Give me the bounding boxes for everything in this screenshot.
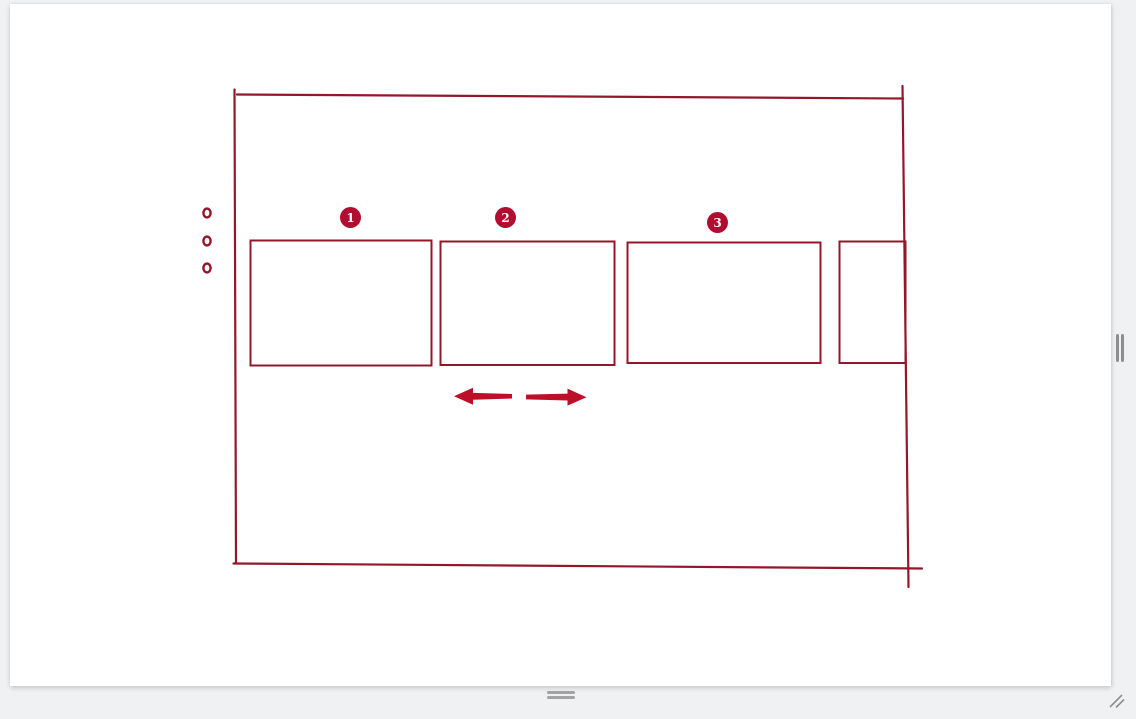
frame-bottom-line bbox=[234, 564, 923, 569]
bullet-dot-3 bbox=[203, 264, 210, 273]
frame-rectangle-3 bbox=[628, 243, 821, 364]
diagonal-resize-grip-icon bbox=[1108, 691, 1128, 711]
app-window: 1 2 3 bbox=[0, 0, 1136, 719]
frame-rectangle-1 bbox=[251, 241, 432, 366]
window-resize-grip[interactable] bbox=[1108, 691, 1128, 711]
bottom-panel-resize-handle[interactable] bbox=[546, 690, 576, 700]
bullet-dots bbox=[203, 209, 210, 273]
frame-rectangles bbox=[251, 241, 906, 366]
frame-rectangle-2 bbox=[441, 242, 615, 366]
frame-rectangle-4 bbox=[840, 242, 906, 364]
left-arrow-icon bbox=[454, 388, 512, 405]
horizontal-grip-icon bbox=[547, 691, 575, 694]
sketch-frame bbox=[234, 86, 923, 587]
bullet-dot-1 bbox=[203, 209, 210, 218]
vertical-grip-icon bbox=[1116, 334, 1119, 362]
sketch-layer bbox=[0, 0, 1136, 719]
frame-left-line bbox=[235, 90, 237, 564]
frame-top-line bbox=[237, 95, 903, 99]
horizontal-grip-icon bbox=[547, 696, 575, 699]
step-badge-2: 2 bbox=[495, 207, 516, 228]
step-badge-1: 1 bbox=[340, 207, 361, 228]
vertical-grip-icon bbox=[1121, 334, 1124, 362]
right-arrow-icon bbox=[526, 389, 587, 406]
bullet-dot-2 bbox=[203, 237, 210, 246]
right-panel-resize-handle[interactable] bbox=[1113, 331, 1127, 365]
direction-arrows bbox=[454, 388, 587, 406]
step-badge-3: 3 bbox=[707, 212, 728, 233]
